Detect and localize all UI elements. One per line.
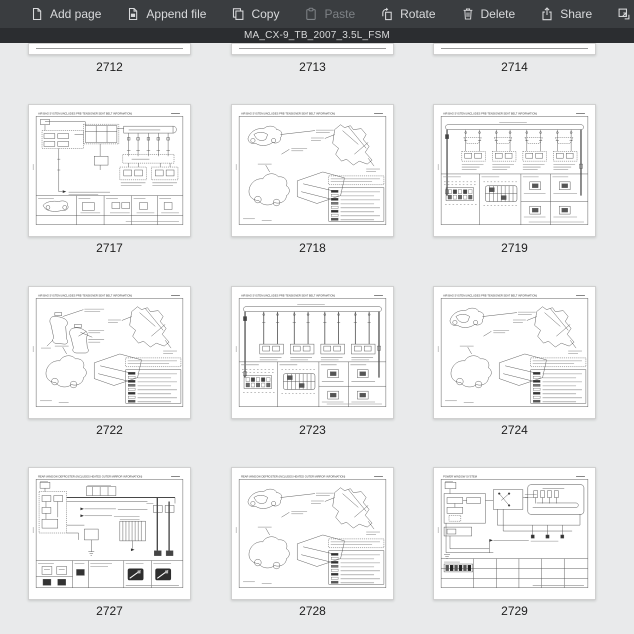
page-number-2719: 2719 <box>433 241 596 255</box>
toolbar-copy-button[interactable]: Copy <box>231 7 279 21</box>
svg-text:AIR BAG SYSTEM (INCLUDES PRE-T: AIR BAG SYSTEM (INCLUDES PRE-TENSIONER S… <box>241 111 335 115</box>
page-preview-2719: AIR BAG SYSTEM (INCLUDES PRE-TENSIONER S… <box>434 105 595 236</box>
page-thumbnail-2712[interactable] <box>28 43 191 55</box>
delete-icon <box>461 7 475 21</box>
svg-text:POWER WINDOW SYSTEM: POWER WINDOW SYSTEM <box>443 474 477 478</box>
page-number-2717: 2717 <box>28 241 191 255</box>
append-file-icon <box>126 7 140 21</box>
page-preview-2727: REAR WINDOW DEFROSTER (INCLUDES HEATED O… <box>29 468 190 599</box>
page-preview-2718: AIR BAG SYSTEM (INCLUDES PRE-TENSIONER S… <box>232 105 393 236</box>
document-filename: MA_CX-9_TB_2007_3.5L_FSM <box>244 30 390 41</box>
svg-text:AIR BAG SYSTEM (INCLUDES PRE-T: AIR BAG SYSTEM (INCLUDES PRE-TENSIONER S… <box>241 293 335 297</box>
toolbar-share-label: Share <box>560 8 592 20</box>
svg-text:REAR WINDOW DEFROSTER (INCLUDE: REAR WINDOW DEFROSTER (INCLUDES HEATED O… <box>241 474 345 478</box>
thumbnail-grid: 271227132714AIR BAG SYSTEM (INCLUDES PRE… <box>0 43 634 634</box>
toolbar-share-button[interactable]: Share <box>540 7 592 21</box>
toolbar-add-page-label: Add page <box>50 8 101 20</box>
page-preview-2723: AIR BAG SYSTEM (INCLUDES PRE-TENSIONER S… <box>232 287 393 418</box>
page-number-2722: 2722 <box>28 423 191 437</box>
rotate-icon <box>380 7 394 21</box>
paste-icon <box>304 7 318 21</box>
svg-text:AIR BAG SYSTEM (INCLUDES PRE-T: AIR BAG SYSTEM (INCLUDES PRE-TENSIONER S… <box>443 111 537 115</box>
toolbar-copy-label: Copy <box>251 8 279 20</box>
page-preview-2717: AIR BAG SYSTEM (INCLUDES PRE-TENSIONER S… <box>29 105 190 236</box>
toolbar-delete-label: Delete <box>481 8 516 20</box>
page-number-2718: 2718 <box>231 241 394 255</box>
extract-icon <box>617 7 631 21</box>
page-preview-2729: POWER WINDOW SYSTEM <box>434 468 595 599</box>
toolbar-append-file-button[interactable]: Append file <box>126 7 206 21</box>
page-thumbnail-2719[interactable]: AIR BAG SYSTEM (INCLUDES PRE-TENSIONER S… <box>433 104 596 237</box>
page-number-2727: 2727 <box>28 604 191 618</box>
page-thumbnail-2723[interactable]: AIR BAG SYSTEM (INCLUDES PRE-TENSIONER S… <box>231 286 394 419</box>
toolbar-paste-label: Paste <box>324 8 355 20</box>
toolbar-append-file-label: Append file <box>146 8 206 20</box>
page-thumbnail-2713[interactable] <box>231 43 394 55</box>
add-page-icon <box>30 7 44 21</box>
page-thumbnail-2717[interactable]: AIR BAG SYSTEM (INCLUDES PRE-TENSIONER S… <box>28 104 191 237</box>
page-number-2728: 2728 <box>231 604 394 618</box>
page-thumbnail-2729[interactable]: POWER WINDOW SYSTEM <box>433 467 596 600</box>
svg-text:AIR BAG SYSTEM (INCLUDES PRE-T: AIR BAG SYSTEM (INCLUDES PRE-TENSIONER S… <box>443 293 537 297</box>
toolbar-rotate-button[interactable]: Rotate <box>380 7 435 21</box>
page-number-2729: 2729 <box>433 604 596 618</box>
share-icon <box>540 7 554 21</box>
page-thumbnail-2724[interactable]: AIR BAG SYSTEM (INCLUDES PRE-TENSIONER S… <box>433 286 596 419</box>
page-preview-2722: AIR BAG SYSTEM (INCLUDES PRE-TENSIONER S… <box>29 287 190 418</box>
page-thumbnail-2718[interactable]: AIR BAG SYSTEM (INCLUDES PRE-TENSIONER S… <box>231 104 394 237</box>
pdf-page-organizer: { "colors":{"toolbar_bg":"#3a3d40","titl… <box>0 0 634 634</box>
page-number-2723: 2723 <box>231 423 394 437</box>
toolbar-add-page-button[interactable]: Add page <box>30 7 101 21</box>
page-thumbnail-2728[interactable]: REAR WINDOW DEFROSTER (INCLUDES HEATED O… <box>231 467 394 600</box>
page-thumbnail-2722[interactable]: AIR BAG SYSTEM (INCLUDES PRE-TENSIONER S… <box>28 286 191 419</box>
svg-text:AIR BAG SYSTEM (INCLUDES PRE-T: AIR BAG SYSTEM (INCLUDES PRE-TENSIONER S… <box>38 293 132 297</box>
page-border-fragment <box>239 48 386 49</box>
page-border-fragment <box>36 48 183 49</box>
toolbar-rotate-label: Rotate <box>400 8 435 20</box>
toolbar-paste-button: Paste <box>304 7 355 21</box>
page-thumbnail-2714[interactable] <box>433 43 596 55</box>
page-thumbnail-2727[interactable]: REAR WINDOW DEFROSTER (INCLUDES HEATED O… <box>28 467 191 600</box>
svg-text:REAR WINDOW DEFROSTER (INCLUDE: REAR WINDOW DEFROSTER (INCLUDES HEATED O… <box>38 474 142 478</box>
page-preview-2724: AIR BAG SYSTEM (INCLUDES PRE-TENSIONER S… <box>434 287 595 418</box>
page-border-fragment <box>441 48 588 49</box>
toolbar-extract-button[interactable]: Extract <box>617 7 634 21</box>
page-number-2714: 2714 <box>433 60 596 74</box>
document-titlebar: MA_CX-9_TB_2007_3.5L_FSM <box>0 28 634 43</box>
page-number-2713: 2713 <box>231 60 394 74</box>
page-preview-2728: REAR WINDOW DEFROSTER (INCLUDES HEATED O… <box>232 468 393 599</box>
toolbar-delete-button[interactable]: Delete <box>461 7 516 21</box>
svg-text:AIR BAG SYSTEM (INCLUDES PRE-T: AIR BAG SYSTEM (INCLUDES PRE-TENSIONER S… <box>38 111 132 115</box>
toolbar: Add pageAppend fileCopyPasteRotateDelete… <box>0 0 634 28</box>
copy-icon <box>231 7 245 21</box>
page-number-2724: 2724 <box>433 423 596 437</box>
page-number-2712: 2712 <box>28 60 191 74</box>
